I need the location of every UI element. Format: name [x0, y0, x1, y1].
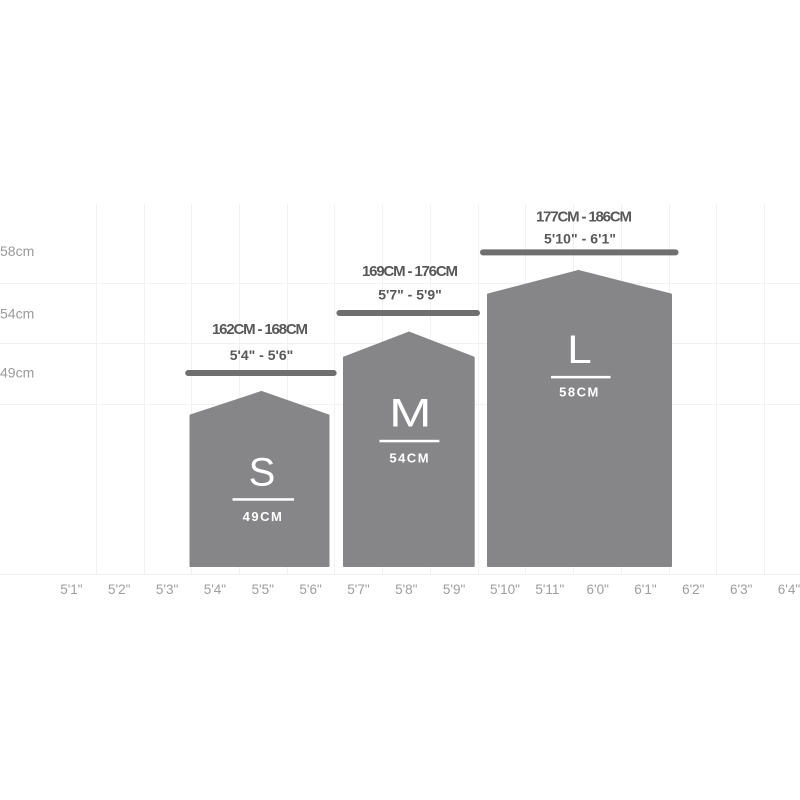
svg-text:54CM: 54CM	[389, 450, 430, 465]
svg-text:54cm: 54cm	[0, 306, 34, 322]
svg-text:S: S	[249, 450, 276, 494]
svg-text:5'3": 5'3"	[156, 582, 179, 597]
svg-text:169CM - 176CM: 169CM - 176CM	[362, 263, 458, 280]
svg-text:6'0": 6'0"	[587, 582, 610, 597]
svg-text:5'8": 5'8"	[395, 582, 418, 597]
svg-text:5'7": 5'7"	[347, 582, 370, 597]
svg-text:5'4": 5'4"	[204, 582, 227, 597]
svg-text:5'4" - 5'6": 5'4" - 5'6"	[230, 347, 294, 363]
svg-text:49cm: 49cm	[0, 364, 34, 380]
svg-text:58CM: 58CM	[559, 384, 600, 399]
svg-text:5'7" - 5'9": 5'7" - 5'9"	[378, 287, 442, 303]
svg-text:5'5": 5'5"	[252, 582, 275, 597]
svg-text:5'2": 5'2"	[108, 582, 131, 597]
svg-text:5'9": 5'9"	[443, 582, 466, 597]
svg-text:5'10": 5'10"	[490, 582, 520, 597]
svg-text:L: L	[567, 327, 591, 372]
svg-text:5'6": 5'6"	[299, 582, 322, 597]
svg-text:6'2": 6'2"	[682, 582, 705, 597]
svg-text:5'1": 5'1"	[60, 582, 83, 597]
svg-text:6'1": 6'1"	[634, 582, 657, 597]
svg-text:5'10" - 6'1": 5'10" - 6'1"	[544, 230, 616, 246]
svg-text:6'4": 6'4"	[778, 582, 800, 597]
svg-text:49CM: 49CM	[243, 509, 284, 524]
svg-text:6'3": 6'3"	[730, 582, 753, 597]
svg-text:5'11": 5'11"	[535, 582, 564, 597]
svg-text:M: M	[389, 391, 431, 436]
svg-text:58cm: 58cm	[0, 243, 34, 259]
svg-text:177CM - 186CM: 177CM - 186CM	[536, 209, 632, 226]
svg-text:162CM - 168CM: 162CM - 168CM	[212, 321, 308, 338]
